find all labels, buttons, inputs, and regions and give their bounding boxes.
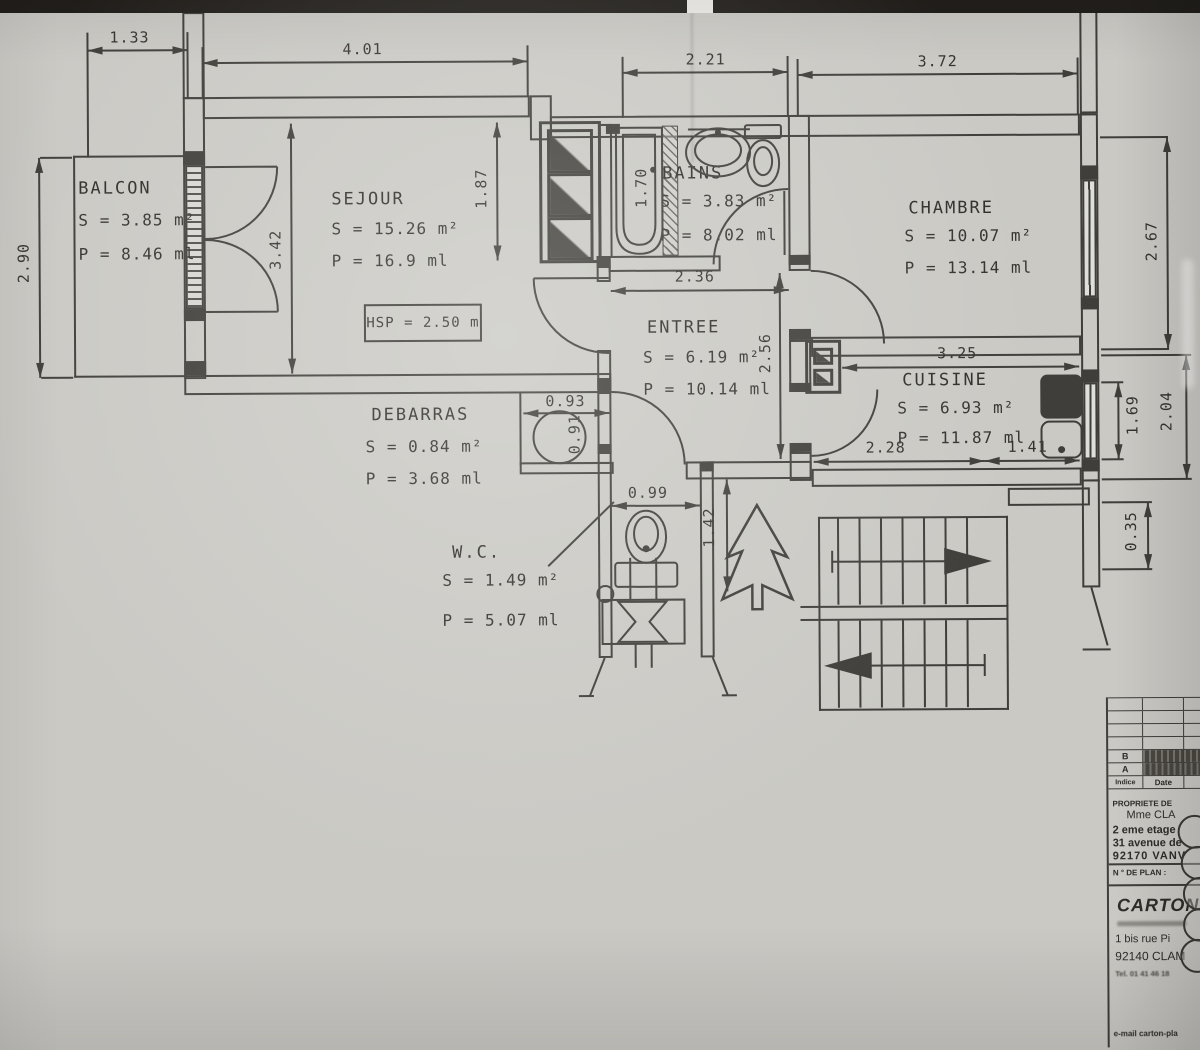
revision-table: B A Indice Date bbox=[1108, 697, 1200, 789]
plan-sheet: 1.334.012.213.722.903.421.871.702.362.56… bbox=[0, 0, 1200, 1050]
revision-row-a: A bbox=[1108, 763, 1200, 776]
revision-row-empty bbox=[1108, 711, 1200, 724]
revision-indice: B bbox=[1108, 750, 1143, 762]
street-line: 31 avenue de bbox=[1113, 837, 1182, 849]
owner-name: Mme CLA bbox=[1126, 809, 1175, 821]
revision-col-date: Date bbox=[1143, 776, 1184, 788]
revision-desc-cell bbox=[1184, 750, 1200, 762]
architect-address2: 92140 CLAM bbox=[1115, 949, 1185, 963]
revision-row-empty bbox=[1108, 697, 1200, 711]
revision-date-cell bbox=[1143, 750, 1184, 762]
photo-top-edge bbox=[0, 0, 1200, 13]
city-line: 92170 VANV bbox=[1113, 850, 1186, 862]
architect-email: e-mail carton-pla bbox=[1114, 1029, 1178, 1038]
architect-tel: Tel. 01 41 46 18 bbox=[1115, 969, 1169, 978]
revision-date-cell bbox=[1143, 763, 1184, 775]
photo-glare bbox=[1182, 259, 1195, 389]
revision-col-indice: Indice bbox=[1108, 776, 1143, 788]
revision-indice: A bbox=[1108, 763, 1143, 775]
floor-line: 2 eme etage bbox=[1113, 824, 1176, 836]
revision-desc-cell bbox=[1184, 763, 1200, 775]
plan-number-label: N ° DE PLAN : bbox=[1113, 868, 1166, 877]
revision-header-row: Indice Date bbox=[1108, 776, 1200, 789]
scanned-floor-plan-photo: 1.334.012.213.722.903.421.871.702.362.56… bbox=[0, 0, 1200, 1050]
architect-address1: 1 bis rue Pi bbox=[1115, 933, 1170, 945]
paper-fold-gap bbox=[687, 0, 713, 13]
revision-row-empty bbox=[1108, 724, 1200, 737]
owner-label: PROPRIETE DE bbox=[1112, 799, 1172, 808]
plan-linework bbox=[0, 0, 1200, 1050]
revision-row-b: B bbox=[1108, 750, 1200, 763]
revision-row-empty bbox=[1108, 737, 1200, 750]
illegible-subtitle bbox=[1117, 921, 1187, 926]
